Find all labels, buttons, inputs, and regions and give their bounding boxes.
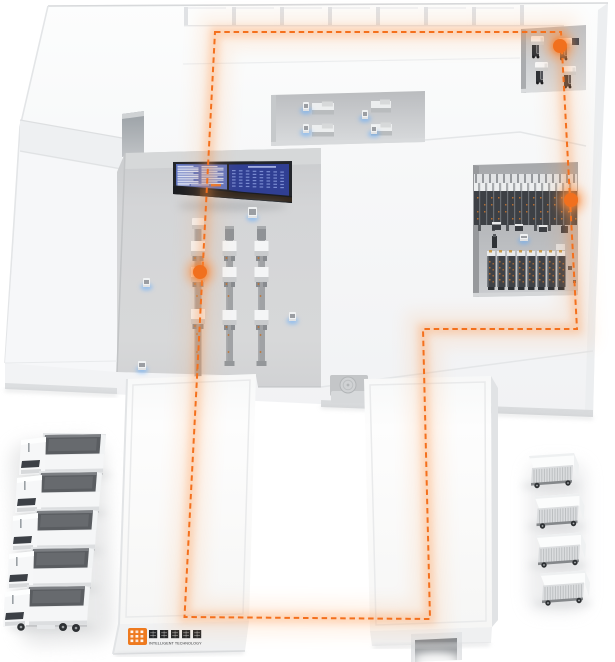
svg-text:INTELLIGENT TECHNOLOGY: INTELLIGENT TECHNOLOGY [149, 642, 202, 646]
